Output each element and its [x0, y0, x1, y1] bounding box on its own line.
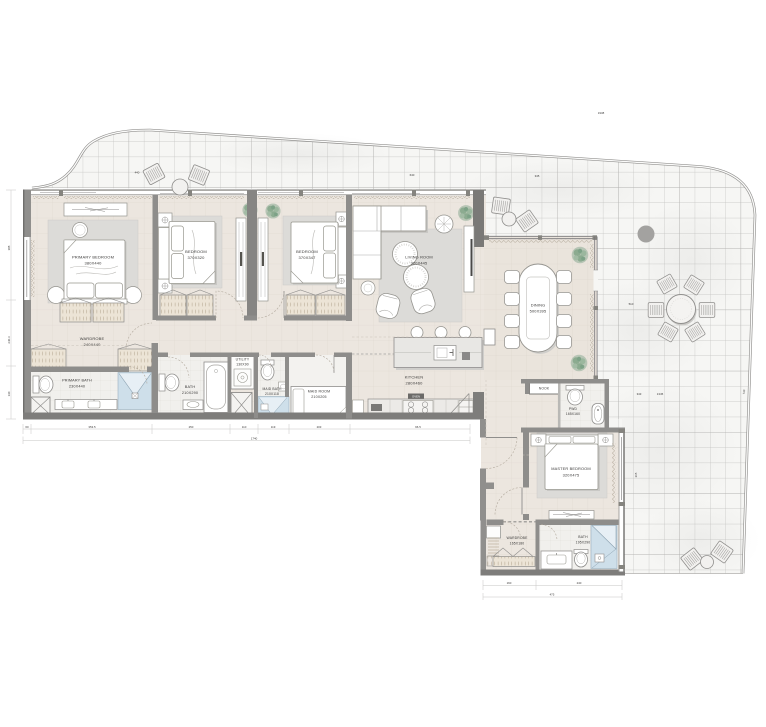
svg-text:203: 203	[317, 425, 322, 429]
svg-text:BATH: BATH	[185, 385, 196, 389]
svg-text:743: 743	[742, 389, 746, 394]
svg-text:388: 388	[7, 245, 11, 250]
svg-text:343: 343	[637, 392, 642, 396]
svg-text:345: 345	[535, 174, 540, 178]
svg-text:PRIMARY BATH: PRIMARY BATH	[62, 379, 92, 383]
svg-text:353.5: 353.5	[88, 425, 96, 429]
svg-text:230X440: 230X440	[69, 385, 85, 389]
svg-text:370X347: 370X347	[298, 255, 316, 260]
svg-text:110: 110	[242, 425, 247, 429]
svg-text:119: 119	[271, 425, 276, 429]
svg-text:280X460: 280X460	[405, 381, 423, 386]
svg-text:210X118: 210X118	[265, 392, 279, 396]
svg-text:240X440: 240X440	[83, 342, 101, 347]
svg-text:MAID ROOM: MAID ROOM	[308, 390, 331, 394]
svg-text:475: 475	[550, 593, 555, 597]
svg-text:WARDROBE: WARDROBE	[506, 536, 528, 540]
svg-text:250: 250	[189, 425, 194, 429]
svg-text:195X290: 195X290	[576, 541, 591, 545]
svg-text:240: 240	[577, 581, 582, 585]
svg-text:LIVING ROOM: LIVING ROOM	[405, 255, 433, 260]
svg-text:320X445: 320X445	[411, 261, 428, 266]
svg-text:215: 215	[634, 472, 638, 477]
svg-text:160: 160	[507, 581, 512, 585]
svg-text:165X160: 165X160	[566, 412, 580, 416]
svg-text:1938: 1938	[598, 111, 605, 115]
svg-text:210X290: 210X290	[182, 391, 198, 395]
svg-text:380X440: 380X440	[84, 261, 102, 266]
svg-text:BATH: BATH	[578, 535, 588, 539]
svg-text:320X475: 320X475	[563, 473, 580, 478]
svg-text:MASTER BEDROOM: MASTER BEDROOM	[551, 466, 591, 471]
svg-text:BEDROOM: BEDROOM	[296, 249, 318, 254]
svg-text:UTILITY: UTILITY	[236, 358, 250, 362]
svg-text:96.5: 96.5	[415, 425, 421, 429]
svg-text:OVEN: OVEN	[412, 395, 420, 399]
svg-text:1740: 1740	[251, 437, 258, 441]
svg-text:130X90: 130X90	[236, 363, 249, 367]
svg-text:370X320: 370X320	[187, 255, 205, 260]
svg-text:640: 640	[410, 173, 415, 177]
svg-text:500X395: 500X395	[530, 309, 547, 314]
svg-text:NOOK: NOOK	[539, 387, 550, 391]
svg-text:440: 440	[135, 171, 140, 175]
svg-text:60: 60	[25, 425, 29, 429]
svg-text:MAID BATH: MAID BATH	[262, 387, 282, 391]
svg-text:210X205: 210X205	[311, 395, 326, 399]
svg-text:BEDROOM: BEDROOM	[185, 249, 207, 254]
svg-text:240.3: 240.3	[7, 336, 11, 344]
svg-text:130: 130	[7, 391, 11, 396]
svg-text:510: 510	[629, 302, 634, 306]
svg-text:1345: 1345	[657, 392, 664, 396]
svg-text:KITCHEN: KITCHEN	[405, 375, 424, 380]
svg-text:165X180: 165X180	[510, 542, 525, 546]
svg-text:PRIMARY BEDROOM: PRIMARY BEDROOM	[72, 255, 114, 260]
svg-text:PWD: PWD	[569, 407, 578, 411]
svg-text:DINING: DINING	[531, 303, 546, 308]
svg-text:WARDROBE: WARDROBE	[80, 336, 105, 341]
